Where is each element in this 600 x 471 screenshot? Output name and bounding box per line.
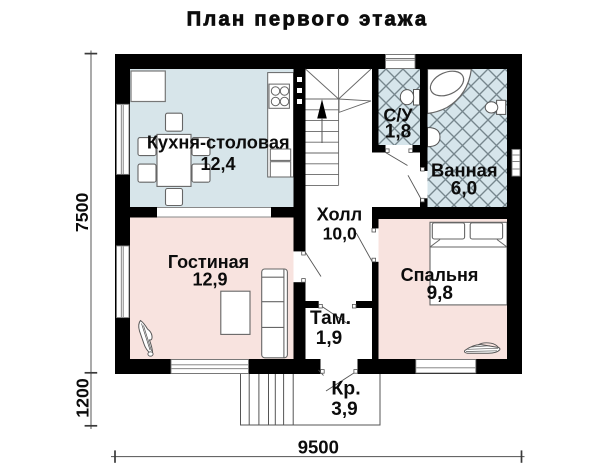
svg-text:9500: 9500	[298, 437, 339, 458]
svg-text:План первого этажа: План первого этажа	[187, 8, 429, 30]
svg-text:6,0: 6,0	[451, 179, 477, 200]
svg-text:Кр.: Кр.	[331, 378, 360, 400]
svg-text:Холл: Холл	[317, 204, 363, 224]
svg-text:1,8: 1,8	[385, 121, 411, 142]
svg-text:10,0: 10,0	[323, 224, 357, 244]
svg-text:1200: 1200	[72, 378, 92, 418]
svg-text:Спальня: Спальня	[401, 265, 479, 285]
svg-text:Там.: Там.	[310, 308, 351, 329]
svg-text:12,9: 12,9	[192, 270, 227, 290]
svg-text:12,4: 12,4	[200, 154, 235, 174]
svg-text:Кухня-столовая: Кухня-столовая	[147, 133, 290, 153]
svg-text:Ванная: Ванная	[431, 160, 498, 181]
svg-text:7500: 7500	[72, 193, 92, 233]
svg-text:1,9: 1,9	[316, 328, 342, 349]
svg-text:9,8: 9,8	[427, 283, 453, 304]
svg-text:3,9: 3,9	[331, 399, 357, 420]
